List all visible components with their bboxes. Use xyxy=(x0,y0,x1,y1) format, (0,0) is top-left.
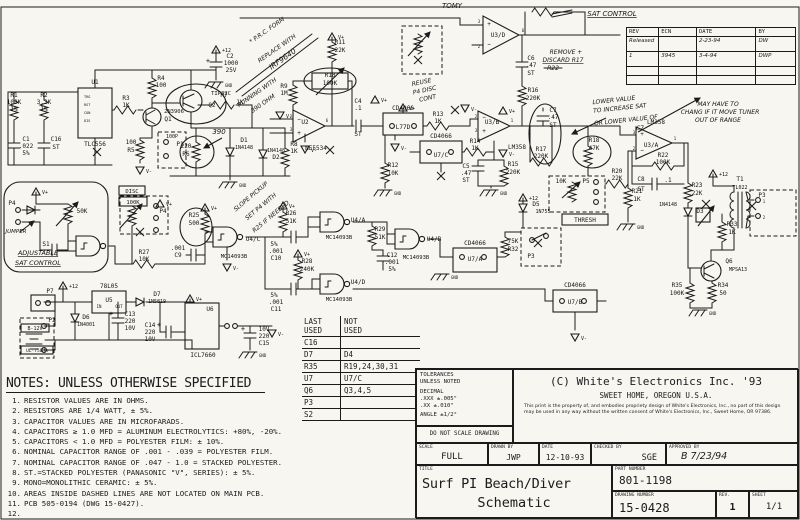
schematic-label: 100K xyxy=(7,99,22,106)
revision-row xyxy=(627,76,795,84)
schematic-label: U6 xyxy=(206,306,214,313)
ground-hatch xyxy=(374,190,378,196)
schematic-label: 220 xyxy=(259,333,270,340)
schematic-label: 1% xyxy=(40,106,48,113)
schematic-label: .47 xyxy=(461,170,472,177)
ground-label: GND xyxy=(637,225,645,230)
schematic-label: ST xyxy=(549,122,557,129)
schematic-label: 2N3906 xyxy=(164,109,184,115)
notes-list: 1.RESISTOR VALUES ARE IN OHMS.2.RESISTOR… xyxy=(6,396,316,520)
schematic-label: P2 xyxy=(48,317,56,324)
vminus-symbol xyxy=(276,112,284,119)
usage-table-row: U7U7/C xyxy=(302,373,420,385)
ground-hatch xyxy=(217,82,221,88)
handwritten-annotation: TOMY xyxy=(442,2,463,10)
schematic-label: CD4066 xyxy=(564,282,586,289)
connector-pin xyxy=(36,301,41,306)
ground-label: GND xyxy=(451,275,459,280)
connector-pin xyxy=(390,124,395,129)
connector-pin xyxy=(756,214,761,219)
vminus-label: V- xyxy=(278,332,284,338)
schematic-label: LM358 xyxy=(508,144,526,151)
schematic-label: 1 xyxy=(511,118,514,123)
schematic-label: + xyxy=(109,310,113,318)
handwritten-annotation: ADJUSTABLE xyxy=(17,249,59,257)
schematic-label: R25 xyxy=(189,212,200,219)
schematic-label: P4 xyxy=(8,200,16,207)
transistor-leg xyxy=(704,264,714,269)
usage-table-row: C16 xyxy=(302,337,420,349)
schematic-label: + xyxy=(297,130,301,137)
schematic-label: 5% xyxy=(22,150,30,157)
resistor-symbol xyxy=(414,34,422,54)
part-number-value: 801-1198 xyxy=(619,474,798,487)
schematic-label: U4/B xyxy=(427,236,442,243)
transistor-leg xyxy=(146,110,155,115)
schematic-label: 1 xyxy=(763,199,766,204)
ground-hatch xyxy=(486,190,490,196)
schematic-label: 240K xyxy=(300,266,315,273)
schematic-label: 2 xyxy=(763,215,766,220)
usage-table-row: D7D4 xyxy=(302,349,420,361)
wire xyxy=(746,192,748,200)
tol-xxx: .XXX ±.005" xyxy=(420,396,509,403)
note-item: 8.ST.=STACKED POLYESTER (PANASONIC "V", … xyxy=(6,468,316,478)
schematic-label: C12 xyxy=(387,252,398,259)
schematic-label: + xyxy=(482,128,486,135)
schematic-label: Q1 xyxy=(164,116,172,123)
schematic-label: 10V xyxy=(145,336,156,343)
nand-gate-symbol xyxy=(320,274,344,294)
handwritten-annotation: SAT CONTROL xyxy=(587,10,637,18)
schematic-label: 1K xyxy=(434,118,442,125)
revision-cell: 2-23-94 xyxy=(697,37,757,51)
schematic-label: 1M xyxy=(280,90,288,97)
schematic-label: 51K xyxy=(286,218,297,225)
sheet-cell: SHEET 1/1 xyxy=(749,491,799,519)
schematic-label: R20 xyxy=(612,168,623,175)
opamp-symbol xyxy=(293,110,325,142)
schematic-label: R9 xyxy=(280,83,288,90)
schematic-label: U4/A xyxy=(351,217,366,224)
schematic-label: 100K xyxy=(126,200,140,206)
legal-text: This print is the property of, and embod… xyxy=(524,404,792,416)
schematic-label: − xyxy=(487,41,491,48)
schematic-label: C14 xyxy=(145,322,156,329)
schematic-label: R8 xyxy=(290,141,298,148)
schematic-label: D7 xyxy=(153,291,161,298)
revision-cell: 1 xyxy=(627,52,659,66)
part-number-label: PART NUMBER xyxy=(615,467,645,472)
schematic-label: 75K xyxy=(508,238,519,245)
schematic-label: 100P xyxy=(166,134,178,140)
schematic-label: R16 xyxy=(528,87,539,94)
connector-pin xyxy=(16,220,21,225)
gate-inverter-bubble xyxy=(419,236,424,241)
company-cell: (C) White's Electronics Inc. '93 SWEET H… xyxy=(513,369,799,443)
schematic-label: D3 xyxy=(696,208,704,215)
not-used-value: U7/C xyxy=(341,373,425,384)
schematic-label: U7/A xyxy=(468,256,483,263)
nand-gate-symbol xyxy=(395,229,419,249)
schematic-label: 22K xyxy=(335,47,346,54)
vminus-symbol xyxy=(461,105,469,112)
not-used-value: R19,24,30,31 xyxy=(341,361,425,372)
schematic-label: D2 xyxy=(272,154,280,161)
revision-rows: Released2-23-94DW139453-4-94DWP xyxy=(627,37,795,84)
ground-hatch xyxy=(239,352,243,358)
schematic-label: 22K xyxy=(612,175,623,182)
rev-value: 1 xyxy=(717,502,748,513)
ground-label: GND xyxy=(239,183,247,188)
handwritten-annotation: R22 xyxy=(547,65,559,72)
diode-symbol xyxy=(71,314,79,322)
schematic-label: 100K xyxy=(670,290,685,297)
schematic-label: 78L05 xyxy=(100,283,118,290)
schematic-label: DIS xyxy=(84,119,90,123)
schematic-label: R13 xyxy=(433,111,444,118)
dashed-region xyxy=(750,190,796,236)
schematic-label: P4 xyxy=(159,208,167,215)
vplus-label: +12 xyxy=(69,284,78,290)
approved-by-cell: APPROVED BY B 7/23/94 xyxy=(666,443,799,465)
schematic-label: ST xyxy=(354,131,362,138)
connector-pin xyxy=(544,234,549,239)
ground-hatch xyxy=(623,224,627,230)
ground-hatch xyxy=(480,190,484,196)
schematic-label: R10 xyxy=(325,72,336,79)
schematic-label: U4/D xyxy=(351,279,366,286)
transistor-leg xyxy=(183,103,194,108)
annotation-arrow xyxy=(56,202,78,226)
scale-label: SCALE xyxy=(419,445,433,450)
handwritten-annotation: C7 xyxy=(636,125,644,132)
revision-cell: DWP xyxy=(756,52,795,66)
revision-cell xyxy=(697,67,757,75)
revision-header-row: REV ECN DATE BY xyxy=(627,28,795,37)
schematic-label: TRG xyxy=(84,95,90,99)
ground-hatch xyxy=(689,310,693,316)
schematic-label: C7 xyxy=(549,107,557,114)
schematic-label: P3 xyxy=(758,192,766,199)
schematic-label: .47 xyxy=(548,114,559,121)
part-number-cell: PART NUMBER 801-1198 xyxy=(612,465,799,491)
notes-section: NOTES: UNLESS OTHERWISE SPECIFIED 1.RESI… xyxy=(6,372,316,520)
schematic-label: .022 xyxy=(19,143,34,150)
scale-value: FULL xyxy=(417,452,487,462)
schematic-label: C5 xyxy=(462,163,470,170)
schematic-label: .001 xyxy=(385,259,400,266)
schematic-label: C9 xyxy=(174,252,182,259)
schematic-label: R3 xyxy=(122,95,130,102)
schematic-label: 1N5819 xyxy=(148,299,166,305)
schematic-label: Q2 xyxy=(208,102,216,109)
schematic-label: 10V xyxy=(259,326,270,333)
revision-cell xyxy=(627,67,659,75)
schematic-label: 1N4148 xyxy=(235,145,253,151)
not-used-value xyxy=(341,337,425,348)
company-city: SWEET HOME, OREGON U.S.A. xyxy=(514,391,798,400)
connector-pin xyxy=(449,150,454,155)
connector-pin xyxy=(154,216,159,221)
schmitt-mark xyxy=(325,219,331,225)
schematic-label: R2 xyxy=(40,92,48,99)
schematic-label: 1K xyxy=(728,229,736,236)
connector-pin xyxy=(412,124,417,129)
ground-hatch xyxy=(245,352,249,358)
drawing-title-line1: Surf PI Beach/Diver xyxy=(422,476,611,492)
schematic-label: MC14093B xyxy=(403,255,430,261)
schematic-label: TL022 xyxy=(732,185,747,191)
note-item: 12. xyxy=(6,509,316,519)
schematic-label: 1000 xyxy=(224,60,239,67)
schematic-label: R29 xyxy=(375,226,386,233)
schematic-label: 220K xyxy=(534,153,549,160)
schematic-label: ST xyxy=(527,70,535,77)
schematic-label: − xyxy=(482,114,486,121)
checked-by-cell: CHECKED BY SGE xyxy=(591,443,666,465)
schematic-label: U7/B xyxy=(568,299,583,306)
schematic-label: TLC556 xyxy=(84,141,106,148)
last-used-header: LASTUSED xyxy=(302,316,341,336)
schematic-label: R34 xyxy=(718,282,729,289)
note-item: 4.CAPACITORS ≥ 1.0 MFD = ALUMINUM ELECTR… xyxy=(6,427,316,437)
handwritten-annotation: DISCARD R17 xyxy=(543,57,584,64)
title-label: TITLE xyxy=(419,467,433,472)
vminus-symbol xyxy=(223,264,231,271)
diode-symbol xyxy=(259,150,267,158)
note-item: 3.CAPACITOR VALUES ARE IN MICROFARADS. xyxy=(6,417,316,427)
schematic-label: R28 xyxy=(302,258,313,265)
schematic-label: 5% xyxy=(270,241,278,248)
connector-pin xyxy=(233,324,238,329)
not-used-value: Q3,4,5 xyxy=(341,385,425,396)
schematic-label: 220K xyxy=(526,95,541,102)
ground-hatch xyxy=(443,274,447,280)
schematic-label: L77D xyxy=(396,124,411,131)
vplus-symbol xyxy=(499,107,507,114)
revision-row: 139453-4-94DWP xyxy=(627,52,795,67)
sheet-value: 1/1 xyxy=(750,502,798,512)
revision-cell xyxy=(756,76,795,84)
ground-hatch xyxy=(617,224,621,230)
connector-pin xyxy=(460,255,465,260)
resistor-symbol xyxy=(128,206,136,226)
not-used-value: D4 xyxy=(341,349,425,360)
handwritten-annotation: OUT OF RANGE xyxy=(695,117,741,124)
note-item: 7.NOMINAL CAPACITOR RANGE OF .047 - 1.0 … xyxy=(6,458,316,468)
transistor-leg xyxy=(146,119,155,124)
schematic-label: 1N4148 xyxy=(659,202,677,208)
nand-gate-symbol xyxy=(320,212,344,232)
schematic-label: 2 xyxy=(633,146,636,151)
vminus-label: V- xyxy=(581,336,587,342)
revision-cell xyxy=(627,76,659,84)
schematic-label: R22 xyxy=(658,152,669,159)
schematic-label: 22K xyxy=(692,190,703,197)
tolerances-sub: UNLESS NOTED xyxy=(420,379,509,386)
rev-label: REV. xyxy=(719,493,730,498)
schematic-label: C8 xyxy=(637,176,645,183)
schematic-label: 3 xyxy=(475,128,478,133)
schematic-label: R4 xyxy=(157,75,165,82)
schematic-label: 220 xyxy=(181,143,192,150)
connector-pin xyxy=(164,140,169,145)
schematic-label: R32 xyxy=(508,246,519,253)
revision-cell: Released xyxy=(627,37,659,51)
schematic-label: ICL7660 xyxy=(190,352,216,359)
company-name: (C) White's Electronics Inc. '93 xyxy=(514,375,798,388)
vplus-label: V+ xyxy=(211,206,217,212)
schematic-label: 50K xyxy=(77,208,88,215)
resistor-symbol xyxy=(64,204,72,224)
schematic-label: DISC xyxy=(125,189,138,195)
schematic-label: 100 xyxy=(156,82,167,89)
ground-label: GND xyxy=(225,83,233,88)
usage-table-row: P3 xyxy=(302,397,420,409)
schematic-label: CD4066 xyxy=(430,133,452,140)
transistor-leg xyxy=(183,94,194,99)
ecn-col-header: ECN xyxy=(659,28,697,36)
annotation-arrow xyxy=(120,204,142,228)
schematic-label: 10K xyxy=(556,178,567,185)
resistor-symbol xyxy=(708,283,716,303)
schmitt-mark xyxy=(325,281,331,287)
drawing-number-cell: DRAWING NUMBER 15-0428 xyxy=(612,491,716,519)
schematic-label: .001 xyxy=(269,299,284,306)
gate-inverter-bubble xyxy=(237,234,242,239)
vplus-label: V+ xyxy=(166,202,172,208)
schematic-label: + xyxy=(640,131,644,138)
ground-hatch xyxy=(380,190,384,196)
annotation-arrow xyxy=(408,32,430,56)
schematic-label: R18 xyxy=(589,137,600,144)
schematic-label: 10K xyxy=(388,170,399,177)
usage-header-row: LASTUSED NOTUSED xyxy=(302,316,420,337)
schematic-label: MC14093B xyxy=(221,254,248,260)
drawing-title-line2: Schematic xyxy=(417,495,611,511)
schematic-label: R27 xyxy=(139,249,150,256)
schematic-label: C10 xyxy=(271,255,282,262)
ground-label: GND xyxy=(500,191,508,196)
rev-cell: REV. 1 xyxy=(716,491,749,519)
schematic-label: P7 xyxy=(46,288,54,295)
schematic-label: 5% xyxy=(388,266,396,273)
ground-hatch xyxy=(231,182,235,188)
schematic-label: R26 xyxy=(286,210,297,217)
connector-pin xyxy=(582,299,587,304)
schematic-label: R12 xyxy=(388,162,399,169)
schematic-label: 50 xyxy=(719,290,727,297)
schematic-label: .001 xyxy=(171,245,186,252)
schematic-label: 3.3K xyxy=(37,99,52,106)
vminus-label: V- xyxy=(146,169,152,175)
schematic-label: D5 xyxy=(532,201,540,208)
schematic-label: S1 xyxy=(42,241,50,248)
date-col-header: DATE xyxy=(697,28,757,36)
vplus-label: V+ xyxy=(196,297,202,303)
schematic-label: ST xyxy=(52,144,60,151)
schematic-label: R23 xyxy=(692,182,703,189)
revision-cell xyxy=(756,67,795,75)
vminus-symbol xyxy=(391,144,399,151)
ground-hatch xyxy=(695,310,699,316)
by-col-header: BY xyxy=(756,28,795,36)
dashed-region xyxy=(402,26,442,74)
checked-by-label: CHECKED BY xyxy=(594,445,622,450)
title-cell: TITLE Surf PI Beach/Diver Schematic xyxy=(416,465,612,519)
schematic-label: .001 xyxy=(269,248,284,255)
not-used-value xyxy=(341,409,425,420)
schematic-label: D1 xyxy=(240,137,248,144)
gate-inverter-bubble xyxy=(344,281,349,286)
schematic-label: C1 xyxy=(22,136,30,143)
schematic-label: R1 xyxy=(10,92,18,99)
nand-gate-symbol xyxy=(76,236,100,256)
schematic-label: 1N755 xyxy=(535,209,550,215)
schematic-label: U3/D xyxy=(491,32,506,39)
revision-cell: DW xyxy=(756,37,795,51)
tolerances-title: TOLERANCES xyxy=(420,372,509,379)
component-box xyxy=(185,303,219,349)
schematic-label: 51K xyxy=(375,234,386,241)
drawing-number-label: DRAWING NUMBER xyxy=(615,493,654,498)
drawn-by-cell: DRAWN BY JWP xyxy=(488,443,539,465)
connector-pin xyxy=(594,200,599,205)
not-used-value xyxy=(341,397,425,408)
connector-pin xyxy=(225,324,230,329)
usage-rows: C16D7D4R35R19,24,30,31U7U7/CQ6Q3,4,5P3S2 xyxy=(302,337,420,421)
schematic-label: R7 xyxy=(220,92,228,99)
schematic-label: Q6 xyxy=(725,258,733,265)
schematic-label: RST xyxy=(84,103,91,107)
schematic-label: CON xyxy=(84,111,90,115)
vplus-label: V+ xyxy=(509,109,515,115)
schematic-label: C15 xyxy=(259,340,270,347)
vplus-label: V+ xyxy=(42,190,48,196)
schematic-label: CD4066 xyxy=(392,105,414,112)
schematic-label: 2 xyxy=(475,114,478,119)
ground-hatch xyxy=(219,182,223,188)
checked-by-value: SGE xyxy=(592,453,657,463)
schematic-label: 2 xyxy=(290,114,293,119)
schematic-label: IN xyxy=(97,304,102,309)
resistor-symbol xyxy=(532,8,554,16)
diode-symbol xyxy=(226,148,234,156)
schematic-label: R33 xyxy=(727,221,738,228)
schematic-label: 100K xyxy=(323,80,338,87)
diode-symbol xyxy=(136,298,144,306)
schematic-label: U4/C xyxy=(246,236,261,243)
handwritten-annotation: MAY HAVE TO xyxy=(697,101,739,108)
ground-hatch xyxy=(251,352,255,358)
schmitt-mark xyxy=(81,243,87,249)
schematic-label: R14 xyxy=(470,138,481,145)
usage-table-row: Q6Q3,4,5 xyxy=(302,385,420,397)
date-value: 12-10-93 xyxy=(540,453,590,462)
resistor-symbol xyxy=(192,142,200,162)
schematic-label: U1 xyxy=(91,79,99,86)
revision-table: REV ECN DATE BY Released2-23-94DW139453-… xyxy=(626,27,796,85)
schematic-label: CD4066 xyxy=(464,240,486,247)
component-box xyxy=(31,295,55,311)
ground-hatch xyxy=(492,190,496,196)
schematic-sheet: GNDGNDGNDGNDGNDGNDGNDGND+12V+V+V+V+V+V+V… xyxy=(0,0,800,520)
schematic-label: MC14093B xyxy=(326,235,353,241)
handwritten-annotation: JUMPER xyxy=(4,229,26,235)
usage-table-row: R35R19,24,30,31 xyxy=(302,361,420,373)
connector-pin xyxy=(164,154,169,159)
